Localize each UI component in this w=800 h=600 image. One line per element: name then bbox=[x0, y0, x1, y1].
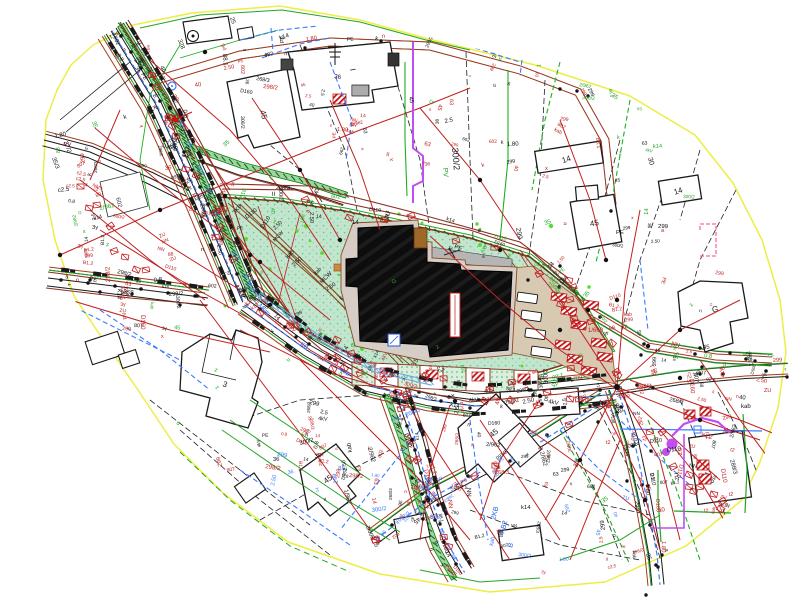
svg-text:x: x bbox=[467, 74, 472, 77]
svg-text:1.80: 1.80 bbox=[54, 132, 67, 140]
svg-text:B1.2: B1.2 bbox=[474, 533, 485, 541]
svg-text:D160: D160 bbox=[488, 420, 501, 427]
svg-text:63: 63 bbox=[543, 481, 549, 488]
svg-text:2.5: 2.5 bbox=[536, 395, 543, 402]
svg-text:II: II bbox=[162, 178, 167, 180]
svg-text:602: 602 bbox=[572, 373, 583, 381]
svg-text:x: x bbox=[544, 432, 549, 438]
svg-text:2.5: 2.5 bbox=[598, 536, 605, 544]
svg-text:x: x bbox=[268, 328, 275, 335]
svg-text:x: x bbox=[507, 80, 512, 88]
svg-text:88: 88 bbox=[693, 454, 698, 460]
svg-text:300/1: 300/1 bbox=[698, 116, 711, 135]
svg-text:3y: 3y bbox=[162, 326, 168, 332]
svg-text:II: II bbox=[272, 191, 276, 198]
svg-text:63: 63 bbox=[361, 127, 368, 134]
svg-text:NN: NN bbox=[511, 523, 517, 528]
svg-text:2/962: 2/962 bbox=[71, 214, 79, 227]
svg-text:45: 45 bbox=[703, 345, 711, 351]
svg-text:n: n bbox=[76, 278, 80, 284]
svg-text:63: 63 bbox=[419, 514, 426, 520]
svg-text:k14: k14 bbox=[521, 505, 531, 511]
svg-text:298/2: 298/2 bbox=[349, 473, 363, 480]
svg-text:807: 807 bbox=[654, 452, 663, 458]
svg-text:36: 36 bbox=[374, 373, 379, 379]
svg-text:k14: k14 bbox=[93, 214, 103, 222]
svg-text:PE: PE bbox=[204, 203, 210, 208]
svg-text:k: k bbox=[64, 283, 71, 287]
svg-text:0.8: 0.8 bbox=[219, 182, 227, 189]
svg-text:807: 807 bbox=[226, 466, 236, 474]
svg-text:602: 602 bbox=[463, 412, 472, 419]
svg-text:c2.5: c2.5 bbox=[607, 563, 617, 570]
svg-text:k: k bbox=[139, 124, 144, 128]
svg-text:c2.5: c2.5 bbox=[66, 183, 75, 189]
svg-text:602: 602 bbox=[489, 139, 498, 145]
svg-text:88.1: 88.1 bbox=[594, 138, 601, 149]
svg-text:35: 35 bbox=[601, 496, 610, 505]
svg-text:PE: PE bbox=[262, 433, 269, 439]
svg-text:t2: t2 bbox=[642, 435, 649, 441]
svg-text:602: 602 bbox=[377, 449, 385, 459]
svg-text:36: 36 bbox=[165, 165, 173, 172]
svg-text:299: 299 bbox=[451, 509, 460, 516]
svg-text:300/2: 300/2 bbox=[239, 116, 245, 129]
svg-text:35: 35 bbox=[583, 290, 592, 299]
svg-text:300/2: 300/2 bbox=[565, 439, 574, 453]
svg-text:II: II bbox=[723, 362, 727, 368]
svg-text:PV: PV bbox=[441, 168, 449, 178]
svg-text:2.5: 2.5 bbox=[767, 353, 774, 359]
svg-text:II: II bbox=[284, 51, 288, 57]
svg-text:36: 36 bbox=[434, 118, 441, 124]
svg-text:300/2: 300/2 bbox=[582, 95, 595, 102]
svg-text:14: 14 bbox=[84, 236, 90, 242]
svg-text:u: u bbox=[286, 357, 292, 364]
svg-text:35: 35 bbox=[222, 139, 231, 148]
svg-text:c2.5: c2.5 bbox=[75, 176, 86, 184]
svg-text:D110: D110 bbox=[650, 438, 663, 445]
svg-text:kab: kab bbox=[489, 536, 497, 546]
svg-text:ZU: ZU bbox=[169, 255, 178, 263]
svg-text:2.50: 2.50 bbox=[138, 163, 147, 168]
svg-text:299: 299 bbox=[338, 147, 345, 156]
svg-text:298/2: 298/2 bbox=[265, 463, 282, 472]
svg-text:14: 14 bbox=[352, 219, 360, 226]
svg-text:63: 63 bbox=[553, 471, 560, 478]
svg-text:299: 299 bbox=[521, 454, 529, 459]
svg-text:x: x bbox=[161, 334, 165, 340]
svg-text:298/2: 298/2 bbox=[617, 393, 631, 400]
svg-text:36: 36 bbox=[412, 486, 419, 493]
svg-text:t2: t2 bbox=[729, 492, 733, 498]
svg-text:2.5: 2.5 bbox=[686, 349, 693, 354]
svg-text:36: 36 bbox=[424, 161, 431, 168]
svg-text:PE: PE bbox=[331, 132, 337, 139]
svg-text:D160: D160 bbox=[162, 143, 176, 152]
svg-text:kab: kab bbox=[614, 402, 621, 413]
svg-text:t2: t2 bbox=[314, 188, 320, 195]
svg-text:299: 299 bbox=[727, 514, 734, 523]
svg-text:36: 36 bbox=[647, 223, 652, 229]
svg-text:NN: NN bbox=[725, 396, 732, 402]
svg-text:PE: PE bbox=[616, 230, 624, 236]
svg-text:II: II bbox=[386, 152, 390, 158]
svg-text:14: 14 bbox=[303, 456, 310, 462]
svg-text:ZU: ZU bbox=[705, 431, 712, 439]
svg-text:63: 63 bbox=[357, 465, 362, 471]
svg-text:807: 807 bbox=[692, 373, 699, 383]
svg-text:4kV: 4kV bbox=[318, 416, 328, 423]
svg-text:k: k bbox=[375, 36, 379, 42]
svg-text:PE: PE bbox=[220, 42, 229, 51]
svg-text:45: 45 bbox=[174, 325, 181, 332]
svg-text:36: 36 bbox=[287, 469, 294, 476]
svg-text:PE: PE bbox=[237, 58, 244, 64]
svg-text:40: 40 bbox=[613, 511, 620, 518]
svg-text:PE: PE bbox=[236, 225, 243, 232]
svg-text:300/2: 300/2 bbox=[450, 147, 462, 170]
svg-text:88: 88 bbox=[698, 382, 704, 388]
svg-text:1/669: 1/669 bbox=[588, 328, 604, 334]
svg-text:k14: k14 bbox=[624, 448, 630, 456]
svg-text:2.50: 2.50 bbox=[270, 474, 278, 486]
svg-text:II: II bbox=[428, 547, 435, 552]
svg-text:3y: 3y bbox=[120, 301, 126, 307]
svg-text:0.8: 0.8 bbox=[342, 473, 349, 479]
svg-text:z: z bbox=[608, 341, 612, 348]
svg-text:88: 88 bbox=[609, 325, 617, 333]
svg-text:kab: kab bbox=[345, 128, 355, 136]
svg-text:k: k bbox=[617, 135, 620, 141]
svg-text:4kV: 4kV bbox=[645, 147, 654, 154]
svg-text:299: 299 bbox=[652, 357, 658, 366]
svg-text:299: 299 bbox=[514, 227, 523, 240]
svg-text:14: 14 bbox=[661, 357, 667, 363]
svg-text:x: x bbox=[631, 216, 635, 221]
svg-text:ZU: ZU bbox=[119, 308, 126, 314]
svg-text:n: n bbox=[360, 148, 365, 151]
svg-text:807: 807 bbox=[660, 479, 668, 485]
svg-text:k: k bbox=[481, 162, 485, 169]
svg-text:300/2: 300/2 bbox=[113, 213, 126, 220]
svg-text:63: 63 bbox=[642, 140, 648, 147]
svg-text:D110: D110 bbox=[369, 207, 382, 214]
svg-text:268/3: 268/3 bbox=[495, 470, 509, 476]
svg-text:k: k bbox=[501, 140, 505, 146]
svg-text:299: 299 bbox=[441, 423, 448, 432]
svg-text:4kV: 4kV bbox=[255, 438, 262, 448]
svg-text:36: 36 bbox=[245, 79, 250, 85]
svg-text:t2: t2 bbox=[637, 420, 644, 425]
svg-text:B: B bbox=[351, 343, 355, 349]
svg-text:300/2: 300/2 bbox=[174, 296, 181, 309]
svg-text:45: 45 bbox=[160, 119, 168, 127]
svg-text:602: 602 bbox=[587, 484, 596, 490]
svg-text:c2.5: c2.5 bbox=[685, 372, 692, 383]
svg-text:k: k bbox=[123, 114, 128, 121]
svg-text:1.80: 1.80 bbox=[559, 556, 569, 563]
svg-text:299: 299 bbox=[489, 63, 497, 73]
svg-text:z: z bbox=[106, 242, 109, 248]
svg-text:300/2: 300/2 bbox=[612, 242, 624, 249]
svg-text:88: 88 bbox=[56, 147, 62, 153]
svg-text:63: 63 bbox=[424, 141, 433, 149]
svg-text:B1.2: B1.2 bbox=[611, 306, 622, 314]
svg-text:1.80: 1.80 bbox=[305, 35, 317, 43]
svg-text:1.80: 1.80 bbox=[507, 141, 520, 148]
svg-text:807: 807 bbox=[298, 214, 305, 223]
svg-text:x: x bbox=[83, 229, 87, 235]
svg-text:2.5: 2.5 bbox=[305, 93, 312, 99]
svg-text:II: II bbox=[605, 557, 609, 562]
svg-text:ZU: ZU bbox=[622, 495, 630, 502]
svg-text:x: x bbox=[545, 166, 548, 172]
svg-text:40: 40 bbox=[475, 431, 482, 438]
svg-text:4kV: 4kV bbox=[322, 352, 330, 363]
svg-text:298/2: 298/2 bbox=[169, 291, 184, 298]
svg-text:602: 602 bbox=[264, 51, 274, 59]
svg-text:268/3: 268/3 bbox=[535, 521, 542, 534]
svg-text:2.50: 2.50 bbox=[492, 47, 499, 58]
svg-text:40: 40 bbox=[406, 501, 411, 507]
svg-text:k: k bbox=[570, 481, 574, 486]
svg-text:k14: k14 bbox=[414, 432, 420, 440]
svg-text:45: 45 bbox=[307, 415, 313, 421]
svg-text:63: 63 bbox=[426, 478, 432, 484]
svg-text:40: 40 bbox=[739, 395, 747, 401]
svg-text:x: x bbox=[389, 158, 395, 161]
svg-text:2.50: 2.50 bbox=[308, 212, 314, 223]
svg-text:ZU: ZU bbox=[689, 444, 696, 450]
svg-text:299: 299 bbox=[773, 357, 783, 364]
svg-text:n: n bbox=[400, 448, 405, 451]
svg-text:NN: NN bbox=[689, 463, 698, 470]
svg-text:40: 40 bbox=[428, 364, 433, 370]
svg-text:14: 14 bbox=[316, 214, 322, 220]
svg-text:t2: t2 bbox=[623, 324, 628, 330]
svg-text:t2: t2 bbox=[606, 440, 611, 446]
svg-text:x: x bbox=[429, 108, 432, 113]
svg-text:NN: NN bbox=[633, 411, 641, 417]
svg-text:36: 36 bbox=[413, 393, 420, 399]
svg-text:299: 299 bbox=[560, 467, 570, 474]
svg-text:40: 40 bbox=[512, 165, 519, 172]
svg-text:45: 45 bbox=[594, 529, 601, 536]
svg-text:2KB: 2KB bbox=[490, 506, 500, 521]
svg-text:n: n bbox=[201, 247, 204, 253]
svg-text:300/2: 300/2 bbox=[371, 506, 386, 514]
svg-text:B1.2: B1.2 bbox=[297, 461, 303, 471]
svg-text:3y: 3y bbox=[92, 225, 98, 231]
svg-text:602: 602 bbox=[239, 65, 245, 74]
svg-text:II: II bbox=[242, 49, 247, 52]
svg-text:n: n bbox=[382, 34, 386, 40]
svg-text:299: 299 bbox=[564, 503, 572, 513]
svg-text:n: n bbox=[404, 489, 408, 495]
svg-text:299: 299 bbox=[624, 316, 633, 323]
svg-text:D160: D160 bbox=[139, 315, 146, 330]
svg-text:299: 299 bbox=[151, 91, 160, 99]
svg-text:t2: t2 bbox=[704, 508, 709, 514]
svg-text:x: x bbox=[673, 556, 676, 561]
svg-text:63: 63 bbox=[534, 72, 540, 78]
svg-text:k: k bbox=[621, 544, 627, 548]
svg-text:14: 14 bbox=[370, 497, 377, 504]
svg-text:2.50: 2.50 bbox=[756, 377, 768, 385]
svg-text:14: 14 bbox=[537, 60, 543, 68]
svg-text:299: 299 bbox=[277, 451, 289, 459]
svg-text:2.5: 2.5 bbox=[444, 117, 454, 125]
svg-text:0.8: 0.8 bbox=[704, 353, 713, 360]
svg-text:k14: k14 bbox=[162, 284, 170, 289]
svg-text:II: II bbox=[231, 181, 235, 188]
svg-text:40: 40 bbox=[655, 348, 661, 354]
svg-text:n: n bbox=[575, 463, 579, 469]
svg-text:n: n bbox=[329, 122, 333, 128]
svg-text:0.8: 0.8 bbox=[68, 198, 76, 205]
svg-text:B1.2: B1.2 bbox=[670, 479, 680, 486]
svg-text:2.50: 2.50 bbox=[556, 254, 566, 264]
svg-text:288/4: 288/4 bbox=[746, 507, 756, 524]
svg-text:u: u bbox=[175, 420, 180, 427]
svg-text:63: 63 bbox=[637, 106, 643, 111]
svg-text:35: 35 bbox=[610, 93, 619, 102]
svg-text:kab: kab bbox=[149, 302, 155, 310]
svg-text:299: 299 bbox=[722, 414, 733, 422]
svg-text:B1.2: B1.2 bbox=[83, 260, 94, 267]
svg-text:3y: 3y bbox=[725, 503, 731, 508]
svg-text:2/962: 2/962 bbox=[486, 442, 501, 449]
svg-text:t2: t2 bbox=[777, 457, 782, 462]
svg-text:36: 36 bbox=[396, 500, 403, 506]
svg-text:300/2: 300/2 bbox=[683, 194, 695, 199]
svg-text:kab: kab bbox=[346, 442, 354, 453]
svg-text:G: G bbox=[78, 210, 82, 215]
svg-text:PE: PE bbox=[280, 36, 286, 43]
svg-text:2.50: 2.50 bbox=[697, 396, 707, 403]
svg-text:63: 63 bbox=[125, 281, 132, 288]
svg-text:602: 602 bbox=[208, 283, 217, 290]
svg-text:88: 88 bbox=[723, 427, 730, 434]
svg-text:3y: 3y bbox=[541, 569, 547, 575]
svg-text:299: 299 bbox=[633, 501, 639, 511]
svg-text:k14: k14 bbox=[653, 144, 662, 150]
svg-text:602: 602 bbox=[430, 515, 441, 521]
svg-text:4kV: 4kV bbox=[469, 397, 479, 404]
svg-text:45: 45 bbox=[637, 330, 643, 336]
svg-text:ZU: ZU bbox=[764, 388, 772, 394]
svg-text:a: a bbox=[562, 222, 568, 226]
svg-text:kab: kab bbox=[632, 551, 637, 559]
svg-text:2.50: 2.50 bbox=[651, 238, 661, 244]
svg-text:NN: NN bbox=[157, 246, 166, 254]
svg-text:299: 299 bbox=[84, 252, 93, 259]
svg-text:c2.5: c2.5 bbox=[706, 376, 717, 384]
svg-text:36: 36 bbox=[379, 529, 387, 537]
svg-text:PE: PE bbox=[347, 36, 355, 43]
svg-text:II: II bbox=[498, 57, 503, 64]
svg-text:299: 299 bbox=[715, 270, 725, 277]
svg-text:2.50: 2.50 bbox=[223, 64, 235, 72]
svg-text:268/3: 268/3 bbox=[388, 488, 393, 500]
svg-text:40: 40 bbox=[657, 506, 666, 515]
svg-text:35/3: 35/3 bbox=[50, 157, 60, 171]
svg-text:n: n bbox=[611, 534, 617, 537]
svg-text:14: 14 bbox=[595, 382, 601, 388]
svg-text:G: G bbox=[203, 488, 211, 496]
svg-text:z: z bbox=[619, 151, 623, 157]
svg-text:63: 63 bbox=[448, 99, 454, 105]
svg-text:602: 602 bbox=[331, 194, 340, 200]
svg-text:299: 299 bbox=[484, 46, 493, 53]
svg-text:35: 35 bbox=[90, 121, 98, 130]
svg-text:299: 299 bbox=[600, 519, 607, 530]
svg-text:40: 40 bbox=[194, 82, 202, 89]
svg-text:268/3: 268/3 bbox=[276, 185, 290, 192]
svg-text:45: 45 bbox=[436, 104, 443, 112]
svg-text:x: x bbox=[449, 394, 455, 397]
svg-text:40: 40 bbox=[269, 208, 275, 214]
svg-text:0.8: 0.8 bbox=[281, 431, 288, 437]
svg-text:14: 14 bbox=[315, 433, 321, 438]
svg-text:14: 14 bbox=[643, 207, 650, 215]
svg-text:14: 14 bbox=[672, 356, 677, 361]
svg-text:40: 40 bbox=[611, 431, 617, 437]
svg-text:2.5: 2.5 bbox=[542, 173, 550, 180]
svg-text:268/3: 268/3 bbox=[454, 433, 460, 445]
svg-text:G: G bbox=[429, 99, 437, 107]
svg-text:88.1: 88.1 bbox=[784, 366, 796, 374]
svg-text:PE: PE bbox=[659, 277, 667, 286]
svg-text:299: 299 bbox=[216, 456, 224, 467]
svg-text:ZU: ZU bbox=[678, 447, 684, 455]
svg-text:30: 30 bbox=[646, 157, 655, 166]
svg-text:k: k bbox=[712, 389, 716, 395]
svg-text:kab: kab bbox=[741, 403, 752, 410]
svg-text:45: 45 bbox=[615, 178, 621, 184]
svg-text:G: G bbox=[493, 83, 497, 88]
svg-text:14: 14 bbox=[360, 113, 366, 119]
svg-text:NN: NN bbox=[161, 237, 170, 245]
svg-text:40: 40 bbox=[188, 206, 193, 212]
svg-text:G: G bbox=[84, 145, 89, 151]
svg-text:63: 63 bbox=[372, 478, 379, 486]
svg-text:c2.5: c2.5 bbox=[737, 429, 746, 435]
svg-text:2.5: 2.5 bbox=[454, 406, 461, 415]
svg-text:299: 299 bbox=[122, 326, 131, 333]
